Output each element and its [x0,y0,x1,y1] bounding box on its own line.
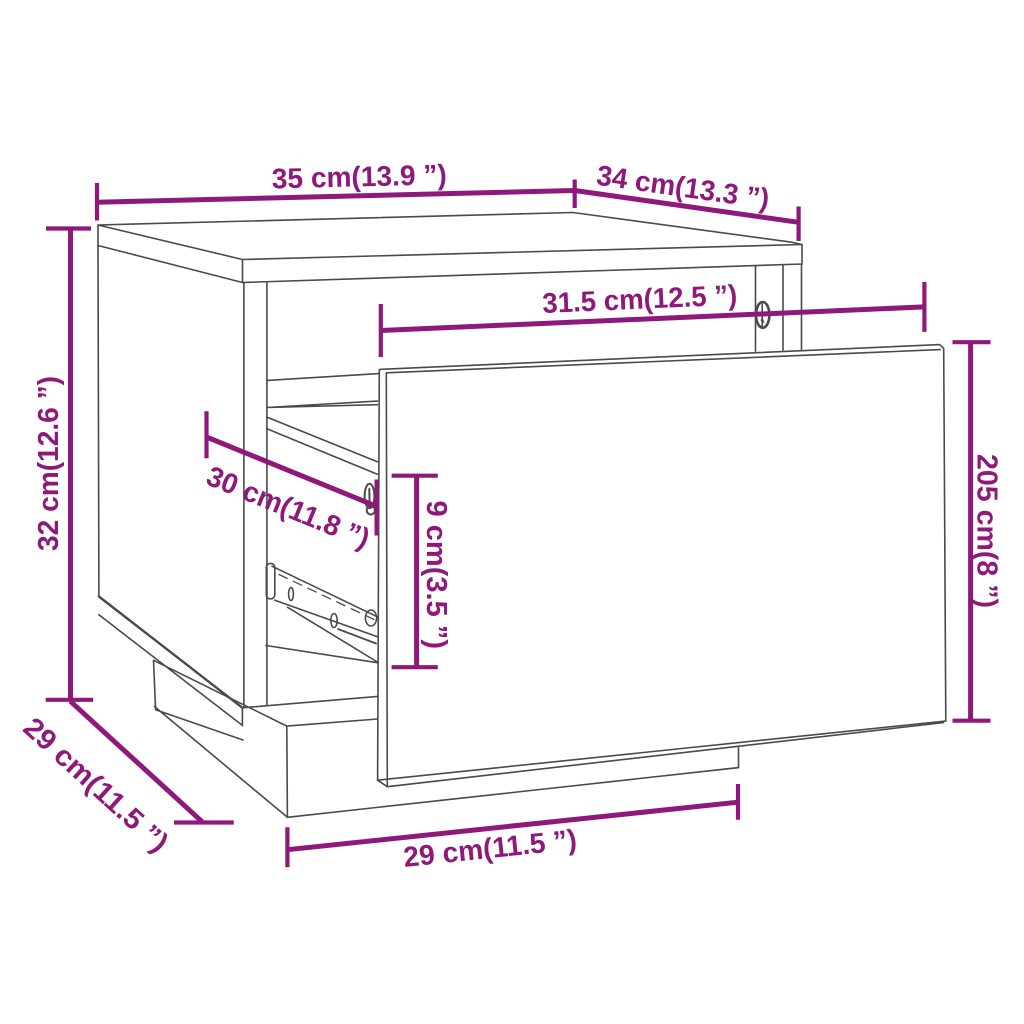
svg-text:205 cm(8 ”): 205 cm(8 ”) [971,454,1003,608]
svg-text:35 cm(13.9 ”): 35 cm(13.9 ”) [271,159,447,195]
svg-text:32 cm(12.6 ”): 32 cm(12.6 ”) [33,376,65,551]
svg-text:9 cm(3.5 ”): 9 cm(3.5 ”) [420,501,452,650]
